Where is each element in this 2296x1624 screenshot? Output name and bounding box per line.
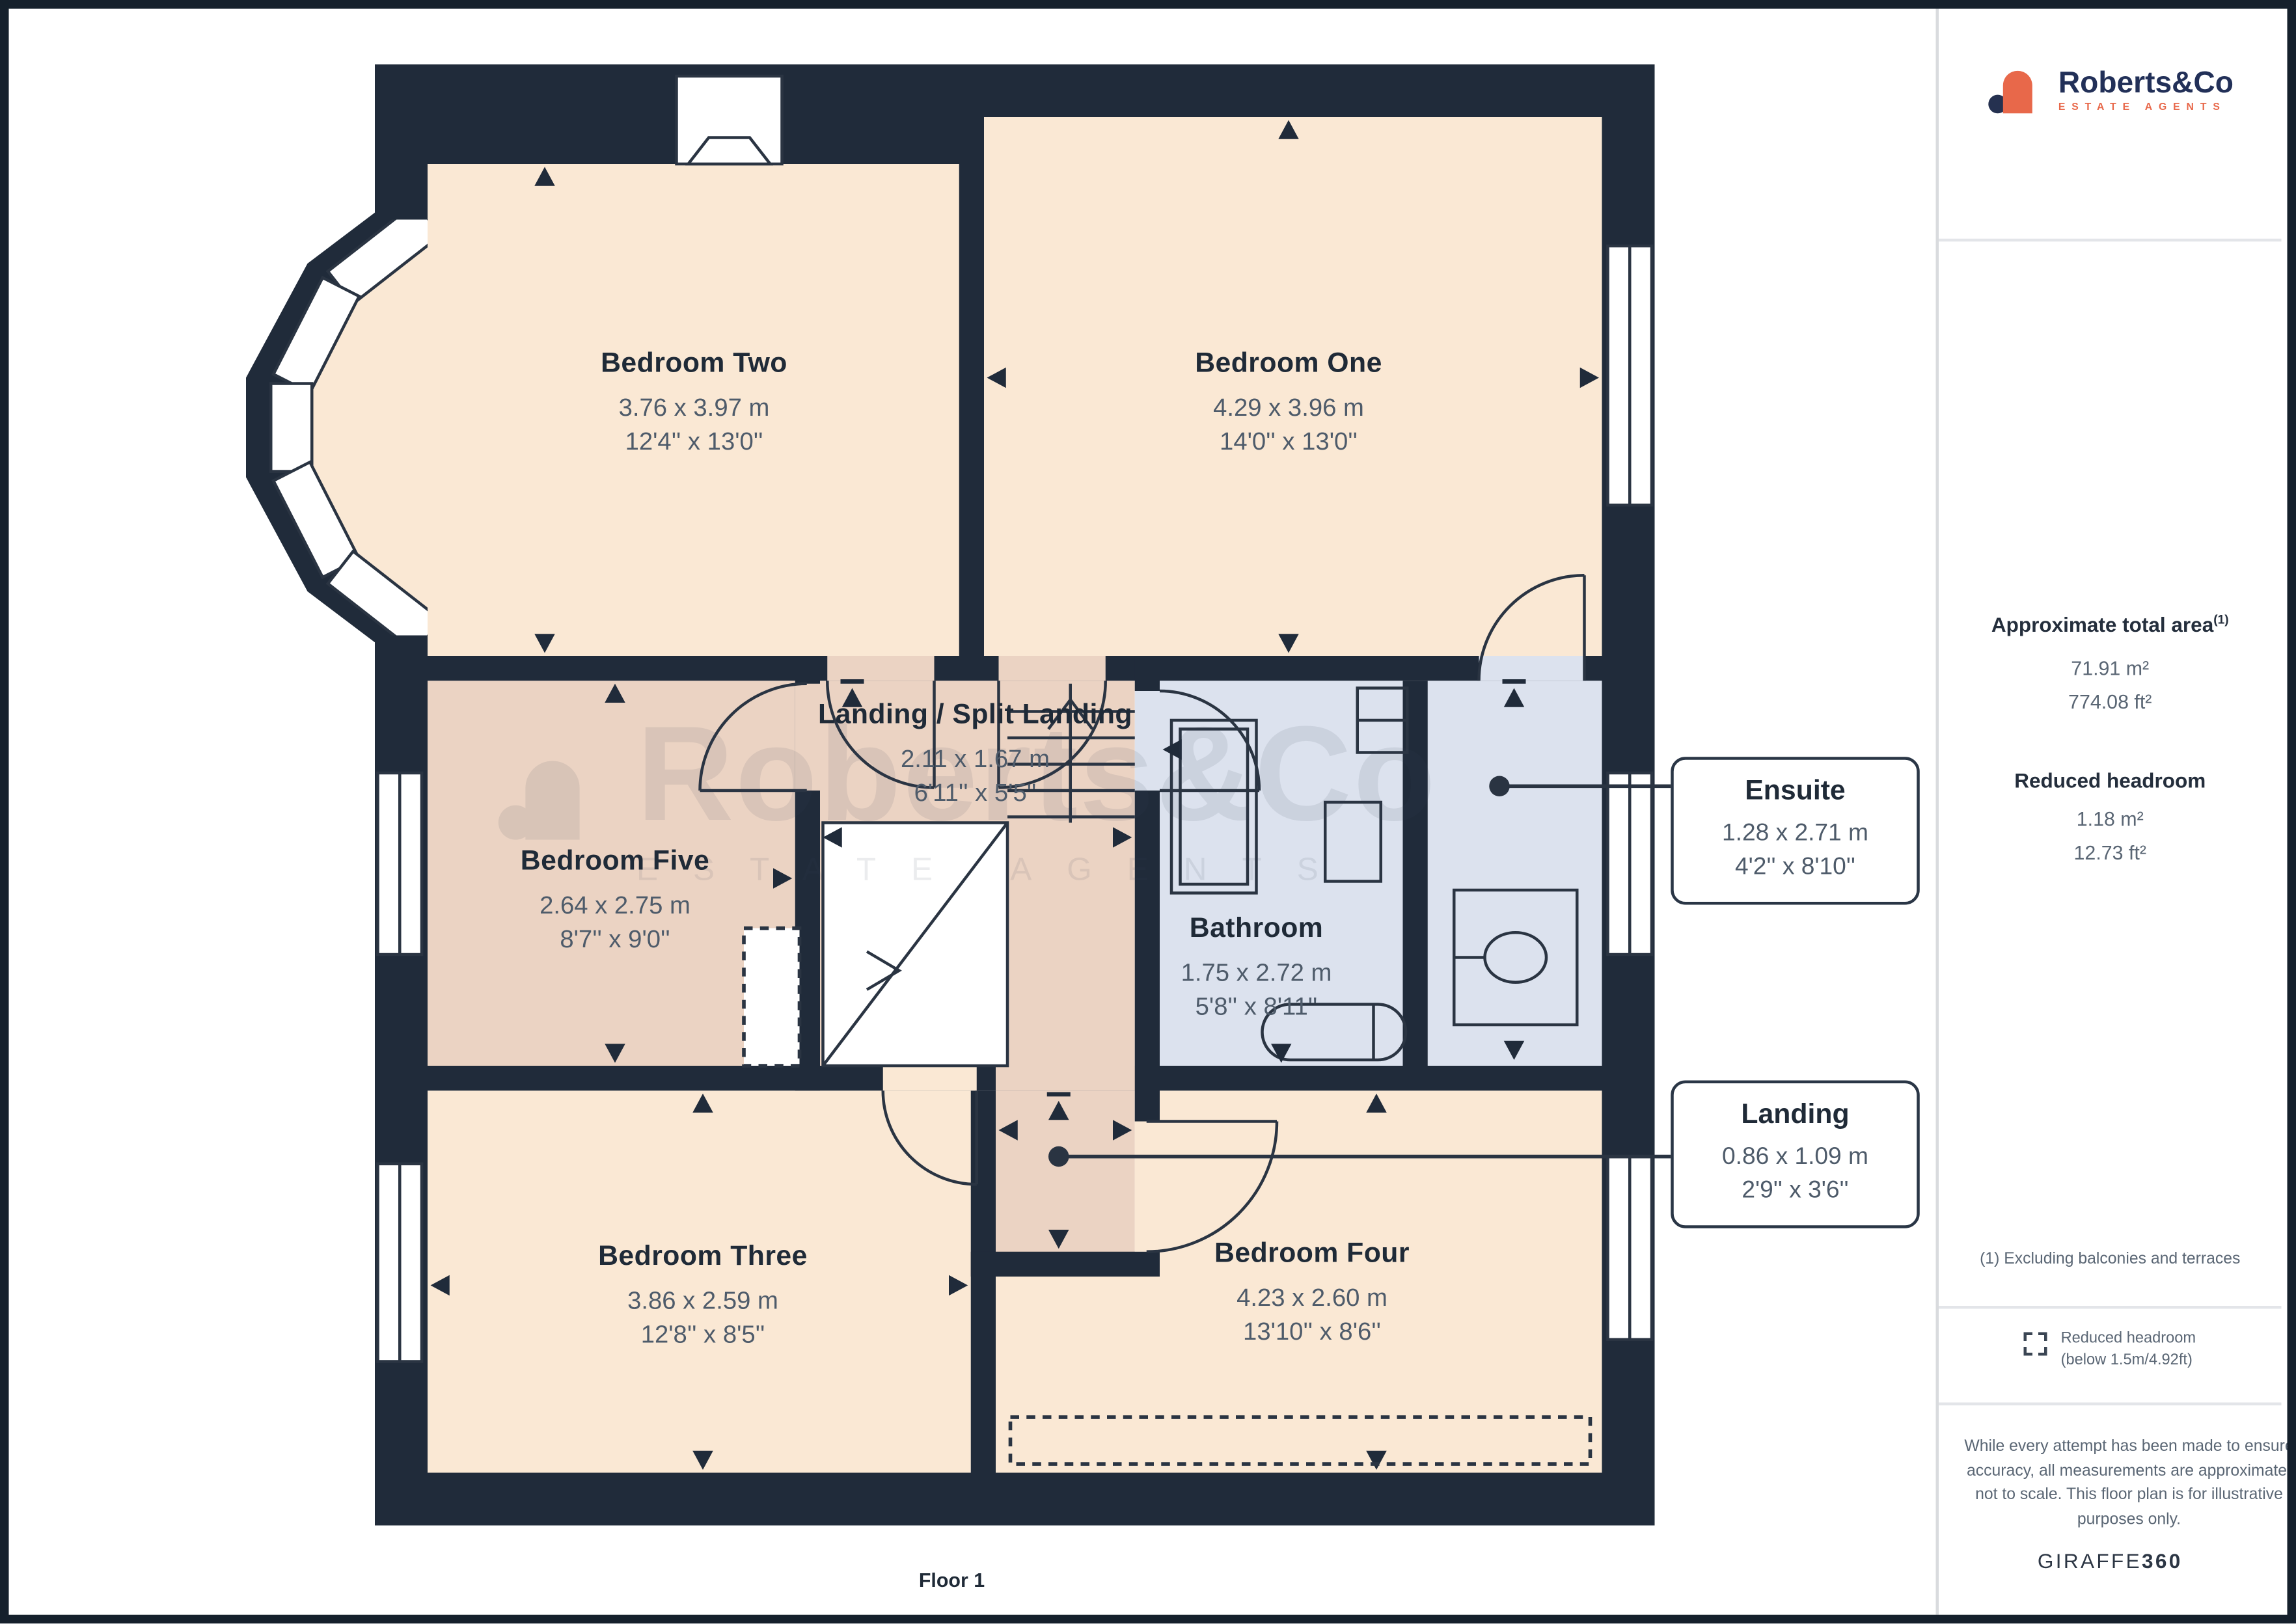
room-size-imperial: 5'8'' x 8'11'' xyxy=(1181,990,1332,1025)
callout-size-imperial: 2'9'' x 3'6'' xyxy=(1676,1174,1914,1207)
callout-name: Landing xyxy=(1676,1100,1914,1132)
reduced-headroom-legend: Reduced headroom (below 1.5m/4.92ft) xyxy=(1939,1328,2282,1371)
total-area-heading: Approximate total area(1) xyxy=(1939,612,2282,636)
room-label-bedroom-four: Bedroom Four 4.23 x 2.60 m 13'10'' x 8'6… xyxy=(1214,1239,1410,1350)
total-area-imperial: 774.08 ft² xyxy=(1939,691,2282,713)
giraffe360-credit: GIRAFFE360 xyxy=(1939,1549,2282,1573)
room-size-metric: 3.76 x 3.97 m xyxy=(601,391,787,426)
room-size-imperial: 12'8'' x 8'5'' xyxy=(598,1318,808,1353)
room-size-metric: 2.11 x 1.67 m xyxy=(818,742,1132,777)
legend-label: Reduced headroom xyxy=(2061,1328,2196,1349)
brand-name: Roberts&Co xyxy=(2058,68,2234,98)
callout-size-imperial: 4'2'' x 8'10'' xyxy=(1676,850,1914,884)
total-area-metric: 71.91 m² xyxy=(1939,657,2282,679)
dashed-area-icon xyxy=(2024,1333,2047,1356)
room-size-imperial: 14'0'' x 13'0'' xyxy=(1195,426,1382,460)
sidebar-divider xyxy=(1939,239,2282,242)
area-footnote: (1) Excluding balconies and terraces xyxy=(1939,1251,2282,1268)
room-size-imperial: 8'7'' x 9'0'' xyxy=(521,923,709,958)
room-label-bedroom-three: Bedroom Three 3.86 x 2.59 m 12'8'' x 8'5… xyxy=(598,1241,808,1353)
reduced-headroom-imperial: 12.73 ft² xyxy=(1939,842,2282,864)
callout-size-metric: 0.86 x 1.09 m xyxy=(1676,1141,1914,1174)
room-size-metric: 1.75 x 2.72 m xyxy=(1181,956,1332,990)
disclaimer-text: While every attempt has been made to ens… xyxy=(1939,1435,2296,1532)
room-name: Landing / Split Landing xyxy=(818,700,1132,733)
credit-bold: 360 xyxy=(2142,1549,2183,1573)
room-name: Bedroom Four xyxy=(1214,1239,1410,1271)
brand-heart-icon xyxy=(1987,64,2045,117)
callout-size-metric: 1.28 x 2.71 m xyxy=(1676,817,1914,850)
room-name: Bedroom One xyxy=(1195,349,1382,381)
room-size-metric: 4.23 x 2.60 m xyxy=(1214,1281,1410,1316)
callout-landing: Landing 0.86 x 1.09 m 2'9'' x 3'6'' xyxy=(1671,1081,1920,1228)
callout-name: Ensuite xyxy=(1676,776,1914,809)
room-size-imperial: 6'11'' x 5'5'' xyxy=(818,777,1132,811)
page: Roberts&Co ESTATE AGENTS Bedroom Two 3.7… xyxy=(0,0,2296,1623)
room-size-metric: 3.86 x 2.59 m xyxy=(598,1284,808,1318)
room-label-bathroom: Bathroom 1.75 x 2.72 m 5'8'' x 8'11'' xyxy=(1181,913,1332,1025)
reduced-headroom-heading: Reduced headroom xyxy=(1939,768,2282,792)
room-name: Bedroom Two xyxy=(601,349,787,381)
room-label-landing-split-landing: Landing / Split Landing 2.11 x 1.67 m 6'… xyxy=(818,700,1132,811)
sidebar-divider xyxy=(1939,1306,2282,1309)
room-size-imperial: 12'4'' x 13'0'' xyxy=(601,426,787,460)
legend-sublabel: (below 1.5m/4.92ft) xyxy=(2061,1349,2196,1371)
footnote-marker: (1) xyxy=(2213,612,2228,627)
room-name: Bedroom Three xyxy=(598,1241,808,1274)
room-size-imperial: 13'10'' x 8'6'' xyxy=(1214,1316,1410,1350)
room-name: Bathroom xyxy=(1181,913,1332,946)
bay-window xyxy=(246,173,441,683)
credit-regular: GIRAFFE xyxy=(2038,1549,2142,1573)
room-label-bedroom-five: Bedroom Five 2.64 x 2.75 m 8'7'' x 9'0'' xyxy=(521,846,709,958)
room-label-bedroom-two: Bedroom Two 3.76 x 3.97 m 12'4'' x 13'0'… xyxy=(601,349,787,460)
room-size-metric: 4.29 x 3.96 m xyxy=(1195,391,1382,426)
floor-label: Floor 1 xyxy=(919,1569,985,1591)
sidebar: Roberts&Co ESTATE AGENTS Approximate tot… xyxy=(1936,9,2282,1615)
logo: Roberts&Co ESTATE AGENTS xyxy=(1939,64,2282,117)
reduced-headroom-metric: 1.18 m² xyxy=(1939,808,2282,830)
brand-tagline: ESTATE AGENTS xyxy=(2058,103,2234,113)
room-label-bedroom-one: Bedroom One 4.29 x 3.96 m 14'0'' x 13'0'… xyxy=(1195,349,1382,460)
callout-ensuite: Ensuite 1.28 x 2.71 m 4'2'' x 8'10'' xyxy=(1671,757,1920,904)
sidebar-divider xyxy=(1939,1403,2282,1406)
room-name: Bedroom Five xyxy=(521,846,709,879)
room-size-metric: 2.64 x 2.75 m xyxy=(521,889,709,923)
